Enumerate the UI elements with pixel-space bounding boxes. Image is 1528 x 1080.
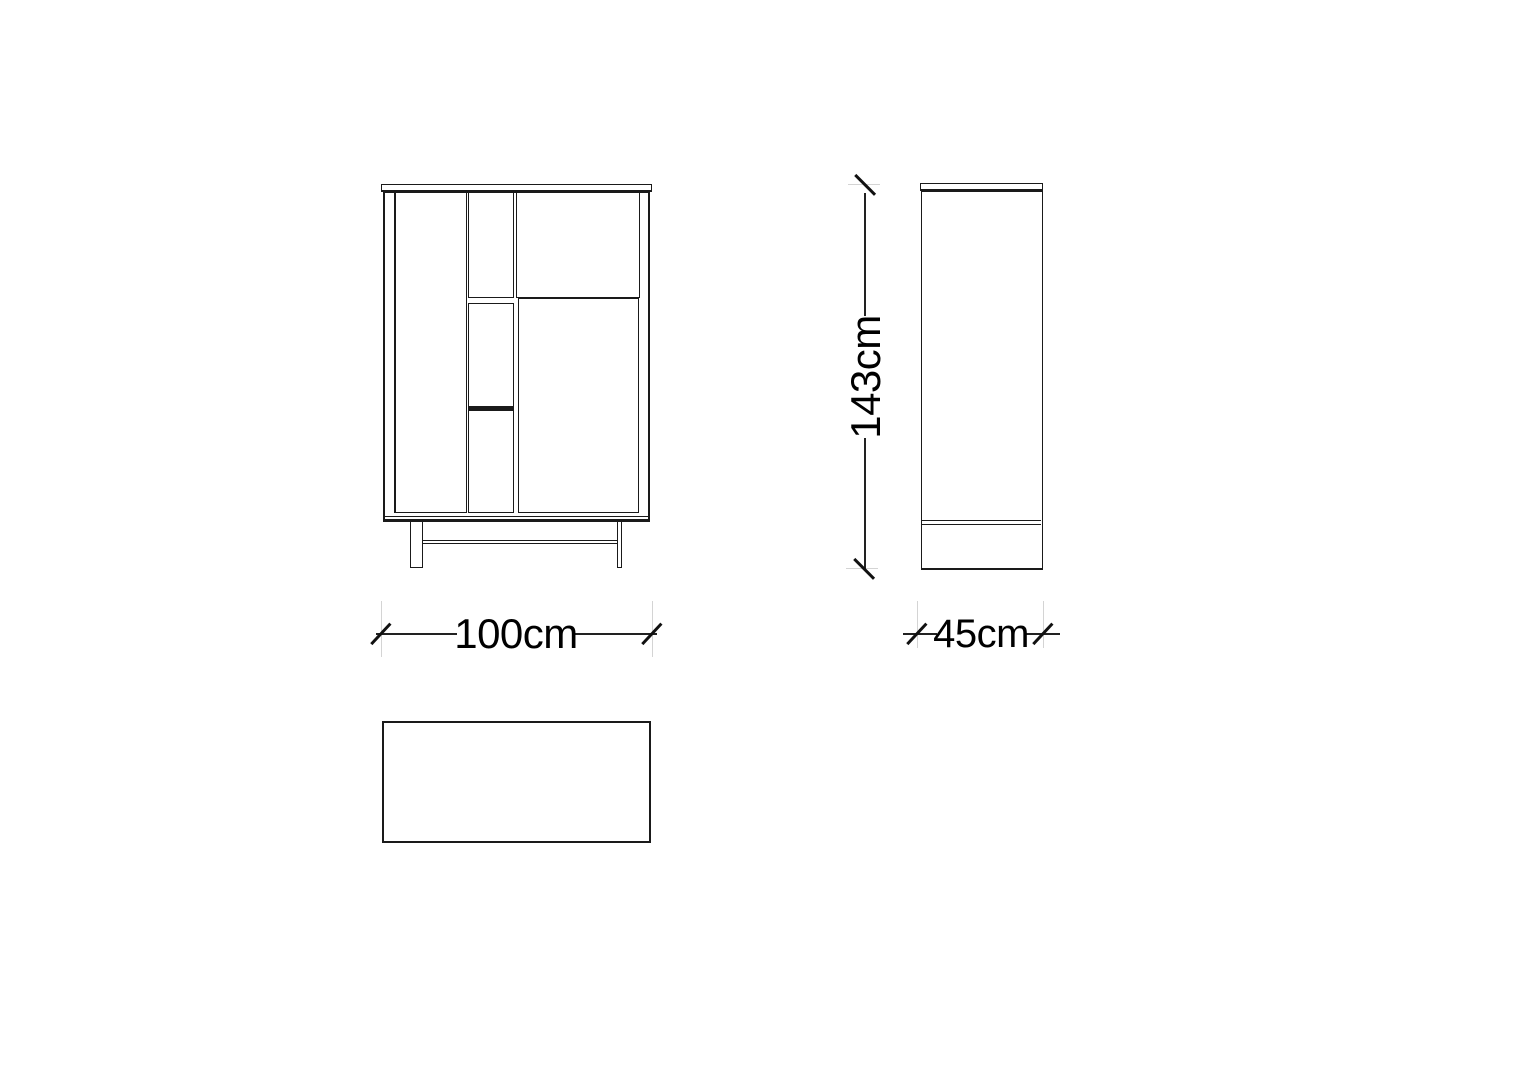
side-body <box>921 191 1043 570</box>
front-bottom-rail <box>385 516 648 518</box>
depth-extension-line-right <box>1043 601 1044 648</box>
technical-drawing-canvas: 100cm 45cm 143cm <box>0 0 1528 1080</box>
front-right-drawer <box>516 192 640 298</box>
height-dim-line-bottom <box>864 438 866 569</box>
width-dim-line-right <box>575 633 657 635</box>
side-lower-divider <box>922 520 1041 525</box>
front-middle-drawer-top <box>468 192 514 298</box>
front-left-leg <box>410 522 423 568</box>
front-middle-drawer-bottom <box>468 410 514 514</box>
height-dim-line-top <box>864 193 866 316</box>
width-dimension-label: 100cm <box>454 613 578 655</box>
depth-dimension-label: 45cm <box>933 614 1029 654</box>
front-leg-stretcher <box>423 540 617 544</box>
front-right-leg <box>617 522 622 568</box>
front-middle-drawer-middle <box>468 303 514 407</box>
front-left-door <box>394 192 467 513</box>
front-right-door <box>518 298 639 514</box>
width-dim-line-left <box>376 633 457 635</box>
side-top-panel <box>920 183 1043 191</box>
top-view-outline <box>382 721 651 843</box>
depth-extension-line-left <box>917 601 918 648</box>
height-dimension-label: 143cm <box>845 315 887 439</box>
